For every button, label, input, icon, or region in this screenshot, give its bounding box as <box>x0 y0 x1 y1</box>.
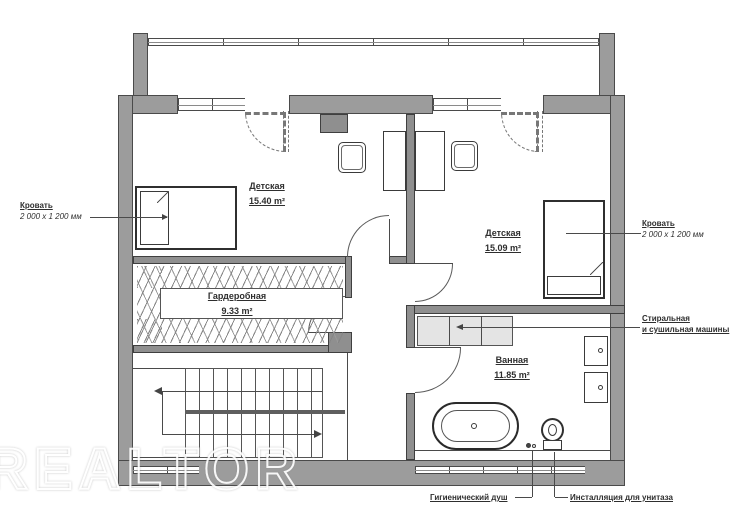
counter-divider-2 <box>481 316 482 346</box>
wall-right <box>610 95 625 465</box>
annotation-bed-left: Кровать 2 000 x 1 200 мм <box>20 200 150 222</box>
label-nursery-left: Детская 15.40 m² <box>212 179 322 209</box>
room-area: 15.09 m² <box>455 241 551 256</box>
label-bathroom: Ванная 11.85 m² <box>462 353 562 383</box>
bed-right-pillow <box>547 276 601 295</box>
room-area: 15.40 m² <box>212 194 322 209</box>
door-leaf-nursery-left <box>389 219 390 257</box>
stairs-arrow-up <box>154 387 162 395</box>
annotation-dims: 2 000 x 1 200 мм <box>642 229 750 240</box>
annotation-bed-right: Кровать 2 000 x 1 200 мм <box>642 218 750 240</box>
washbasin-2 <box>584 372 608 403</box>
washbasin-1-drain <box>598 348 603 353</box>
chair-left <box>338 142 366 173</box>
label-wardrobe: Гардеробная 9.33 m² <box>172 289 302 319</box>
stairs-arrow-down <box>314 430 322 438</box>
leader-toilet-vertical <box>554 452 555 497</box>
leader-toilet-horizontal <box>555 497 568 498</box>
chair-right <box>451 141 478 171</box>
room-name: Детская <box>212 179 322 194</box>
leader-bed-left-arrow <box>162 214 168 220</box>
stairs-walkline-down <box>162 434 314 435</box>
desk-right <box>415 131 445 191</box>
desk-left <box>383 131 406 191</box>
annotation-toilet: Инсталляция для унитаза <box>570 492 710 503</box>
door-arc-nursery-right <box>415 264 453 302</box>
wardrobe-rack-top <box>137 266 343 288</box>
leader-washer-arrow <box>456 324 463 330</box>
leader-shower-horizontal <box>515 497 532 498</box>
window-bottom-bathroom <box>415 466 585 474</box>
balcony-door-arc-right <box>501 112 539 152</box>
annotation-label: Гигиенический душ <box>430 493 508 502</box>
washbasin-2-drain <box>598 385 603 390</box>
bed-right-blanket-fold <box>590 262 603 275</box>
pillar-top-right <box>599 33 615 97</box>
annotation-dims: 2 000 x 1 200 мм <box>20 211 150 222</box>
wall-left <box>118 95 133 486</box>
stairs-mid-rail <box>185 410 345 414</box>
stairs-upper-flight <box>185 368 323 412</box>
wall-top-right-block <box>543 95 615 114</box>
leader-shower-vertical <box>532 450 533 497</box>
wall-between-rooms <box>406 114 415 264</box>
leader-bed-right <box>566 233 641 234</box>
label-nursery-right: Детская 15.09 m² <box>455 226 551 256</box>
wall-bathroom-left-b <box>406 393 415 460</box>
annotation-title: Кровать <box>642 218 750 229</box>
annotation-shower: Гигиенический душ <box>430 492 514 503</box>
annotation-washer: Стиральная и сушильная машины <box>642 313 750 335</box>
leader-washer <box>462 327 640 328</box>
stairs-walkline-up <box>162 391 322 392</box>
wall-top-center-block <box>289 95 433 114</box>
hygienic-shower-symbol <box>526 443 531 448</box>
balcony-door-arc-left <box>245 112 286 152</box>
door-arc-nursery-left <box>347 215 389 257</box>
annotation-label: Инсталляция для унитаза <box>570 493 673 502</box>
counter-divider-1 <box>449 316 450 346</box>
washbasin-1 <box>584 336 608 366</box>
toilet-base <box>543 440 562 450</box>
floor-plan: Детская 15.40 m² Детская 15.09 m² Гардер… <box>0 0 750 523</box>
stairs-top-edge <box>133 368 185 369</box>
annotation-line1: Стиральная <box>642 313 750 324</box>
room-name: Гардеробная <box>172 289 302 304</box>
annotation-title: Кровать <box>20 200 150 211</box>
door-arc-bathroom <box>415 348 461 393</box>
room-name: Ванная <box>462 353 562 368</box>
wall-wardrobe-right <box>345 256 352 298</box>
bathroom-wall-face-line <box>415 450 610 451</box>
wall-bathroom-left-a <box>406 305 415 348</box>
hall-edge-line <box>347 353 348 460</box>
toilet-inner <box>548 424 557 436</box>
pillar-top-left <box>133 33 148 97</box>
hygienic-shower-head <box>532 444 536 448</box>
balcony-glazing <box>148 38 599 46</box>
annotation-line2: и сушильная машины <box>642 324 750 335</box>
balcony-door-leaf-right <box>537 111 543 152</box>
window-nursery-left <box>178 98 245 111</box>
room-area: 9.33 m² <box>172 304 302 319</box>
balcony-door-leaf-left <box>283 111 289 152</box>
bathtub-drain <box>471 423 477 429</box>
pillar-center <box>320 114 348 133</box>
wall-bathroom-top <box>406 305 625 314</box>
stairs-walkline-turn <box>162 391 163 434</box>
window-nursery-right <box>433 98 501 111</box>
wardrobe-rack-bottom <box>137 319 343 343</box>
bed-left-blanket-fold <box>157 191 169 203</box>
room-name: Детская <box>455 226 551 241</box>
washer-dryer-counter <box>417 316 513 346</box>
wall-nursery-wardrobe-a <box>133 256 347 264</box>
watermark: REALTOR <box>0 436 303 503</box>
wall-wardrobe-bottom <box>133 345 352 353</box>
room-area: 11.85 m² <box>462 368 562 383</box>
